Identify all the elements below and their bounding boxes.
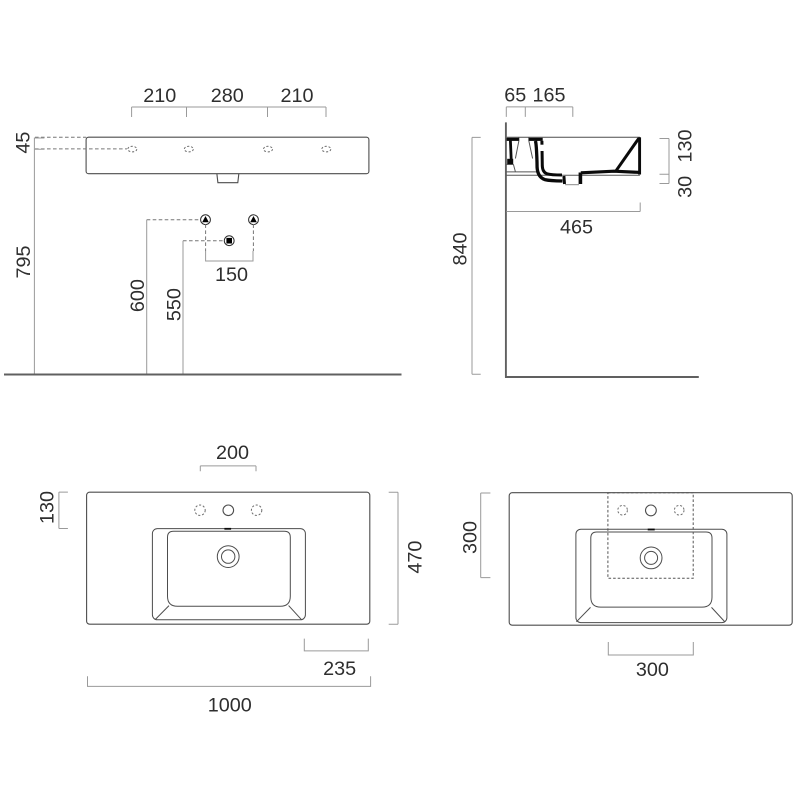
svg-text:300: 300 xyxy=(636,659,669,681)
svg-text:130: 130 xyxy=(675,129,697,162)
svg-text:280: 280 xyxy=(211,85,244,107)
svg-text:165: 165 xyxy=(532,84,565,106)
svg-text:130: 130 xyxy=(37,491,59,524)
svg-text:465: 465 xyxy=(560,216,593,238)
svg-text:150: 150 xyxy=(215,264,248,286)
svg-text:840: 840 xyxy=(449,232,471,265)
svg-text:45: 45 xyxy=(13,132,35,154)
svg-text:30: 30 xyxy=(675,176,697,198)
svg-text:200: 200 xyxy=(216,442,249,464)
svg-text:795: 795 xyxy=(13,245,35,278)
svg-text:300: 300 xyxy=(460,521,482,554)
svg-text:210: 210 xyxy=(280,85,313,107)
svg-text:470: 470 xyxy=(404,541,426,574)
svg-text:550: 550 xyxy=(163,288,185,321)
svg-text:65: 65 xyxy=(504,84,526,106)
svg-text:235: 235 xyxy=(323,658,356,680)
svg-text:1000: 1000 xyxy=(208,694,252,716)
svg-text:210: 210 xyxy=(143,85,176,107)
svg-text:600: 600 xyxy=(127,279,149,312)
